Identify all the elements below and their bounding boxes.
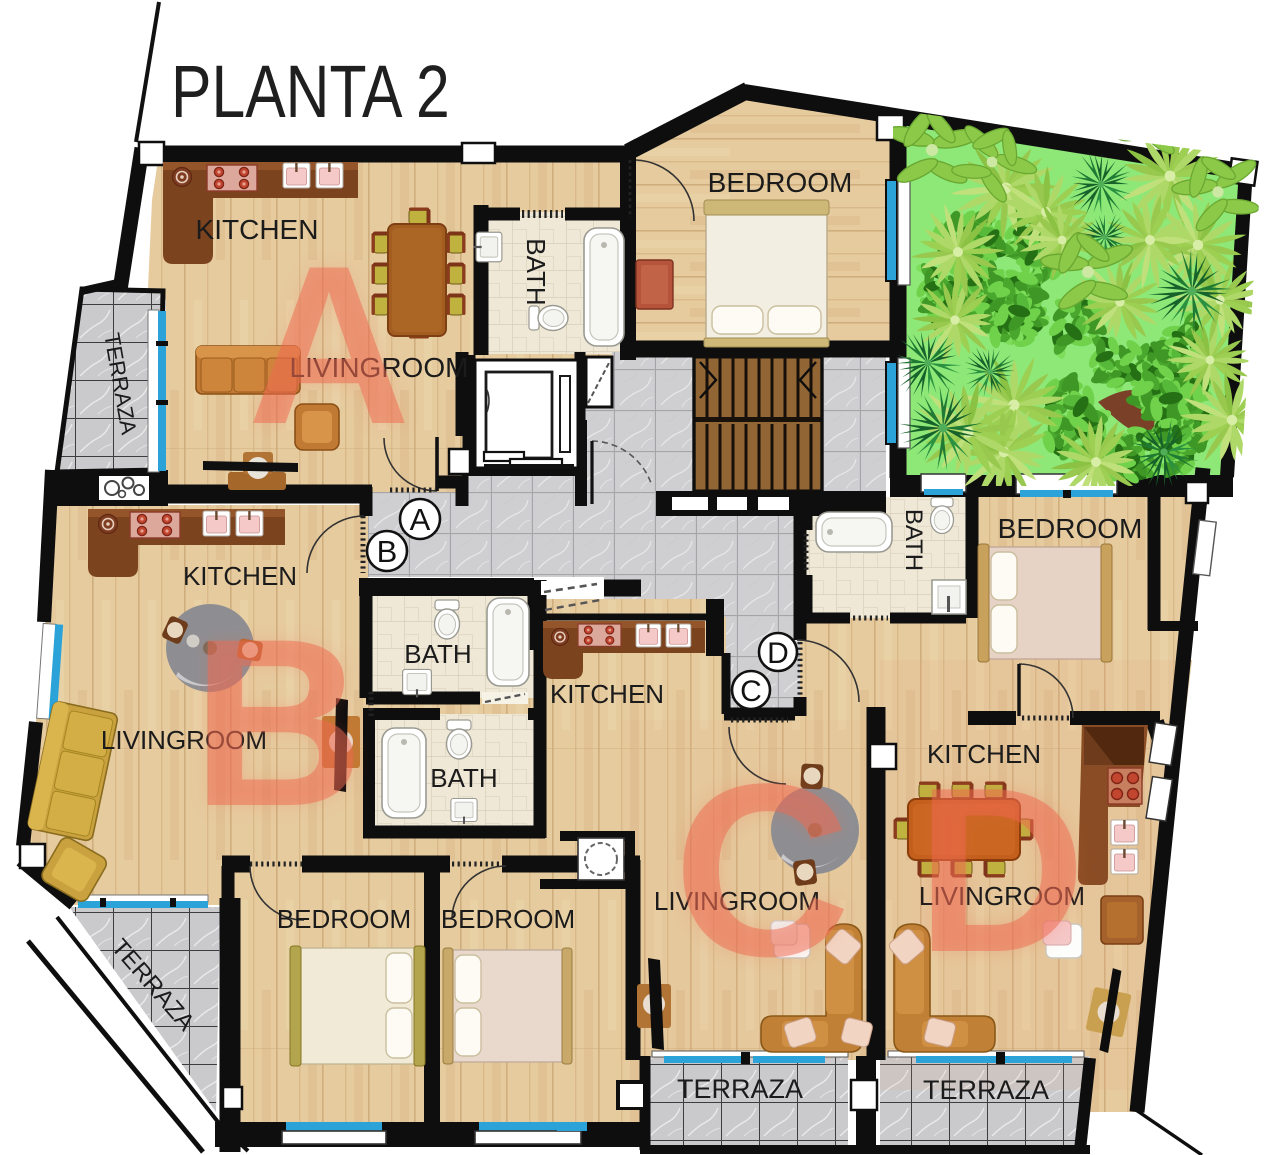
svg-text:A: A (410, 502, 431, 537)
svg-text:TERRAZA: TERRAZA (923, 1075, 1049, 1105)
svg-text:A: A (247, 218, 410, 471)
svg-text:BEDROOM: BEDROOM (277, 904, 411, 934)
svg-text:KITCHEN: KITCHEN (550, 679, 664, 709)
svg-text:BEDROOM: BEDROOM (998, 513, 1143, 544)
svg-text:B: B (377, 534, 398, 569)
svg-text:KITCHEN: KITCHEN (183, 561, 297, 591)
svg-text:BEDROOM: BEDROOM (708, 167, 853, 198)
svg-text:BATH: BATH (521, 238, 551, 305)
svg-text:D: D (767, 637, 789, 670)
svg-text:BEDROOM: BEDROOM (441, 904, 575, 934)
svg-text:B: B (192, 589, 365, 856)
svg-text:BATH: BATH (900, 509, 927, 571)
svg-text:BATH: BATH (430, 763, 497, 793)
svg-text:C: C (740, 675, 762, 708)
svg-text:D: D (916, 738, 1086, 1001)
svg-text:BATH: BATH (404, 639, 471, 669)
svg-text:TERRAZA: TERRAZA (677, 1074, 803, 1104)
svg-text:PLANTA 2: PLANTA 2 (171, 51, 450, 133)
svg-text:C: C (673, 733, 851, 1008)
